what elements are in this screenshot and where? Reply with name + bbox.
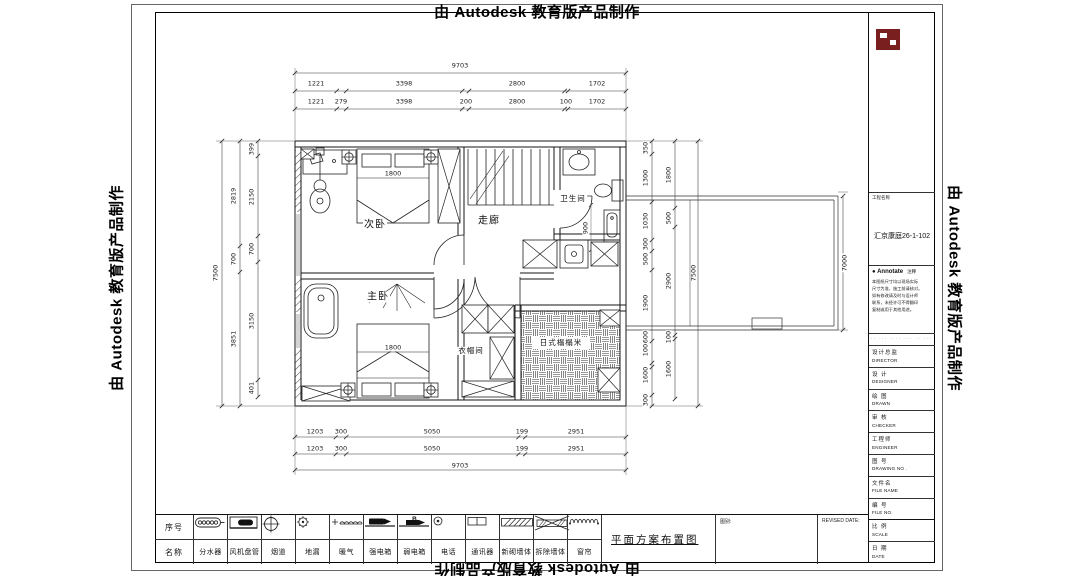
- legend-label: 分水器: [194, 539, 227, 564]
- dimension-label: 300: [334, 445, 348, 452]
- autodesk-education-stamp-top: 由 Autodesk 教育版产品制作: [434, 1, 640, 22]
- autodesk-education-stamp-left: 由 Autodesk 教育版产品制作: [106, 185, 127, 391]
- dimension-label: 1800: [384, 170, 403, 177]
- room-label-corridor: 走廊: [477, 216, 501, 227]
- annotate-note-line: 如有修改请及时与设计师: [872, 292, 932, 299]
- legend-item-floor-drain: 地漏: [295, 515, 329, 564]
- dimension-label: 9703: [451, 62, 470, 69]
- dimension-label: 1600: [642, 366, 649, 385]
- legend-item-manifold: 分水器: [193, 515, 227, 564]
- dimension-label: 300: [642, 393, 649, 407]
- dimension-label: 2900: [665, 272, 672, 291]
- legend-label: 拆除墙体: [534, 539, 567, 564]
- dimension-label: 9703: [451, 462, 470, 469]
- phone-icon: [432, 515, 465, 539]
- title-block-rows: 设计总监DIRECTOR设 计DESIGNER绘 图DRAWN审 核CHECKE…: [869, 345, 935, 563]
- dimension-label: 7500: [690, 264, 697, 283]
- dimension-label: 279: [334, 98, 348, 105]
- legend-header-cell: 序号 名称: [155, 515, 193, 564]
- dimension-label: 2800: [508, 80, 527, 87]
- dimension-label: 700: [230, 252, 237, 266]
- weak-box-icon: B: [398, 515, 431, 539]
- dimension-label: 199: [515, 428, 529, 435]
- drawing-frame: [155, 12, 935, 563]
- legend-header-top: 序号: [155, 515, 193, 539]
- drawing-title: 平面方案布置图: [611, 532, 699, 547]
- legend-header-bottom: 名称: [155, 539, 193, 564]
- fan-coil-icon: [228, 515, 261, 539]
- annotate-notes: 本图纸尺寸均以现场实际尺寸为准，施工前请核对。如有修改请及时与设计师联系，未经许…: [872, 278, 932, 313]
- dimension-label: 1030: [642, 212, 649, 231]
- annotate-note-line: 尺寸为准，施工前请核对。: [872, 285, 932, 292]
- dimension-label: 1221: [307, 98, 326, 105]
- dimension-label: 3398: [395, 80, 414, 87]
- dimension-label: 500: [642, 252, 649, 266]
- annotate-note-line: 联系，未经许可不得翻印: [872, 299, 932, 306]
- titleblock-row-scale: 比 例SCALE: [869, 519, 935, 541]
- flue-icon: [262, 515, 295, 539]
- dimension-label: 5050: [423, 428, 442, 435]
- dimension-label: 2951: [567, 445, 586, 452]
- dimension-label: 900: [582, 221, 589, 235]
- annotate-cell: ● Annotate注释 本图纸尺寸均以现场实际尺寸为准，施工前请核对。如有修改…: [869, 265, 935, 333]
- legend-label: 通讯器: [466, 539, 499, 564]
- dimension-label: 2150: [248, 188, 255, 207]
- floor-drain-icon: [296, 515, 329, 539]
- dimension-label: 1702: [588, 98, 607, 105]
- annotate-note-line: 本图纸尺寸均以现场实际: [872, 278, 932, 285]
- titleblock-row-file-name: 文件名FILE NAME: [869, 476, 935, 498]
- revised-date-label: REVISED DATE:: [822, 518, 860, 524]
- dimension-label: 1702: [588, 80, 607, 87]
- dimension-label: 350: [642, 141, 649, 155]
- dimension-label: 7500: [212, 264, 219, 283]
- dimension-label: 3150: [248, 312, 255, 331]
- titleblock-row-designer: 设 计DESIGNER: [869, 367, 935, 389]
- micro-text-row: ·· ··· ···· ··· ·· ··· ···· ···: [869, 333, 935, 345]
- annotate-note-line: 复制或用于其他用途。: [872, 306, 932, 313]
- titleblock-row-file-no-: 编 号FILE NO.: [869, 498, 935, 520]
- dimension-label: 1900: [642, 294, 649, 313]
- room-label-master-bedroom: 主卧: [366, 292, 390, 303]
- radiator-icon: [330, 515, 363, 539]
- intercom-icon: [466, 515, 499, 539]
- dimension-label: 2951: [567, 428, 586, 435]
- titleblock-row-engineer: 工程师ENGINEER: [869, 432, 935, 454]
- project-name-cell: 工程名称 汇京康庭26-1-102: [869, 192, 935, 265]
- legend-item-demolish-wall: 拆除墙体: [533, 515, 567, 564]
- legend-item-phone: 电话: [431, 515, 465, 564]
- dimension-label: 700: [248, 242, 255, 256]
- legend-item-curtain: 窗帘: [567, 515, 601, 564]
- legend-item-flue: 烟道: [261, 515, 295, 564]
- legend-label: 电话: [432, 539, 465, 564]
- legend-label: 强电箱: [364, 539, 397, 564]
- dimension-label: 1300: [642, 169, 649, 188]
- sheet-type-cell: 图别:: [715, 515, 817, 564]
- dimension-label: 1800: [665, 166, 672, 185]
- legend-label: 窗帘: [568, 539, 601, 564]
- drawing-title-cell: 平面方案布置图: [601, 515, 715, 564]
- room-label-cloakroom: 衣帽间: [457, 347, 485, 355]
- dimension-label: 2819: [230, 187, 237, 206]
- dimension-label: 1600: [665, 360, 672, 379]
- cad-sheet: 由 Autodesk 教育版产品制作 由 Autodesk 教育版产品制作 由 …: [0, 0, 1074, 576]
- legend-item-intercom: 通讯器: [465, 515, 499, 564]
- revised-date-cell: REVISED DATE:: [817, 515, 868, 564]
- manifold-icon: [194, 515, 227, 539]
- dimension-label: 401: [248, 381, 255, 395]
- dimension-label: 1221: [307, 80, 326, 87]
- dimension-label: 2800: [508, 98, 527, 105]
- legend-item-radiator: 暖气: [329, 515, 363, 564]
- titleblock-row-checker: 审 核CHECKER: [869, 410, 935, 432]
- legend-item-fan-coil: 风机盘管: [227, 515, 261, 564]
- legend-item-new-wall: 新砌墙体: [499, 515, 533, 564]
- legend-label: 地漏: [296, 539, 329, 564]
- dimension-label: 100: [665, 330, 672, 344]
- titleblock-row-date: 日 期DATE: [869, 541, 935, 563]
- titleblock-row-drawing-no-: 图 号DRAWING NO .: [869, 454, 935, 476]
- dimension-label: 300: [642, 237, 649, 251]
- company-logo: [876, 29, 900, 50]
- legend-item-power-box: 强电箱: [363, 515, 397, 564]
- titleblock-row-director: 设计总监DIRECTOR: [869, 345, 935, 367]
- titleblock-row-drawn: 绘 图DRAWN: [869, 389, 935, 411]
- dimension-label: 7000: [841, 254, 848, 273]
- power-box-icon: [364, 515, 397, 539]
- project-name: 汇京康庭26-1-102: [869, 231, 935, 241]
- dimension-label: 3851: [230, 330, 237, 349]
- dimension-label: 500: [665, 211, 672, 225]
- dimension-label: 1800: [384, 344, 403, 351]
- dimension-label: 199: [515, 445, 529, 452]
- autodesk-education-stamp-right: 由 Autodesk 教育版产品制作: [945, 185, 966, 391]
- dimension-label: 100: [559, 98, 573, 105]
- dimension-label: 399: [248, 142, 255, 156]
- curtain-icon: [568, 515, 601, 539]
- new-wall-icon: [500, 515, 533, 539]
- legend-item-weak-box: B弱电箱: [397, 515, 431, 564]
- legend-label: 弱电箱: [398, 539, 431, 564]
- room-label-tatami: 日式榻榻米: [539, 339, 584, 347]
- legend-label: 烟道: [262, 539, 295, 564]
- legend-label: 风机盘管: [228, 539, 261, 564]
- dimension-label: 3398: [395, 98, 414, 105]
- project-name-label: 工程名称: [872, 195, 890, 201]
- demolish-wall-icon: [534, 515, 567, 539]
- title-block: 工程名称 汇京康庭26-1-102 ● Annotate注释 本图纸尺寸均以现场…: [868, 12, 935, 563]
- annotate-header: ● Annotate注释: [872, 269, 932, 275]
- room-label-secondary-bedroom: 次卧: [363, 220, 387, 231]
- dimension-label: 5050: [423, 445, 442, 452]
- sheet-type-label: 图别:: [720, 518, 731, 525]
- dimension-label: 1203: [306, 445, 325, 452]
- room-label-bathroom: 卫生间: [559, 195, 587, 203]
- legend-strip: 序号 名称 分水器风机盘管烟道地漏暖气强电箱B弱电箱电话通讯器新砌墙体拆除墙体窗…: [155, 514, 868, 563]
- dimension-label: 100: [642, 343, 649, 357]
- legend-label: 新砌墙体: [500, 539, 533, 564]
- legend-label: 暖气: [330, 539, 363, 564]
- dimension-label: 200: [459, 98, 473, 105]
- dimension-label: 1203: [306, 428, 325, 435]
- dimension-label: 300: [334, 428, 348, 435]
